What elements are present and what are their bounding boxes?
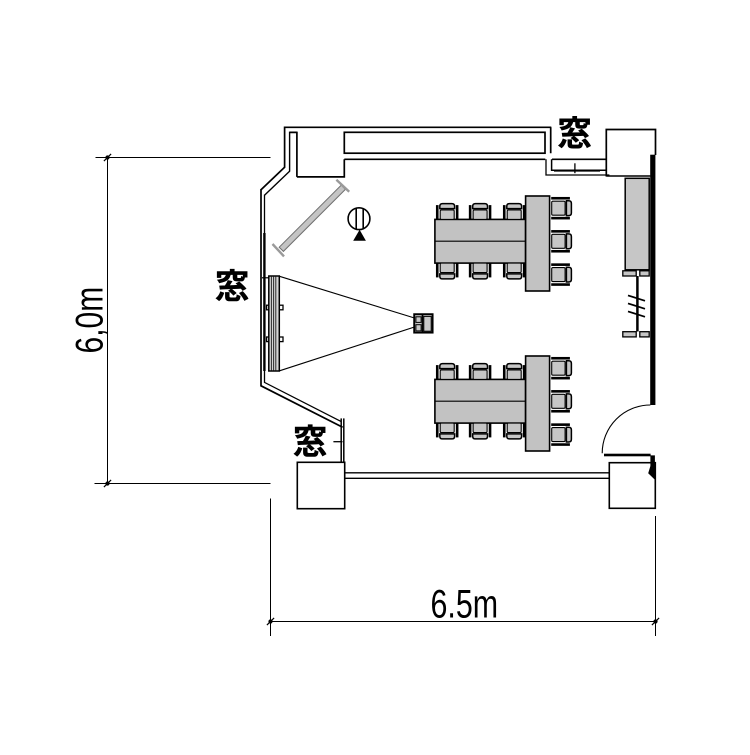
svg-text:6,0m: 6,0m — [69, 287, 111, 354]
svg-text:6.5m: 6.5m — [431, 581, 499, 626]
